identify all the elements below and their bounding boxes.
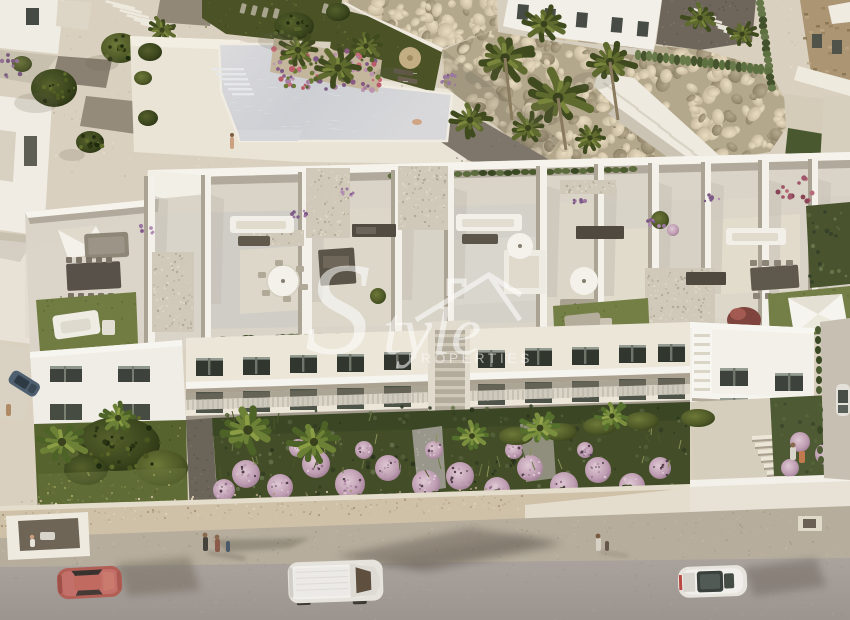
svg-text:PROPERTIES: PROPERTIES xyxy=(408,350,533,366)
svg-text:S: S xyxy=(305,235,371,382)
